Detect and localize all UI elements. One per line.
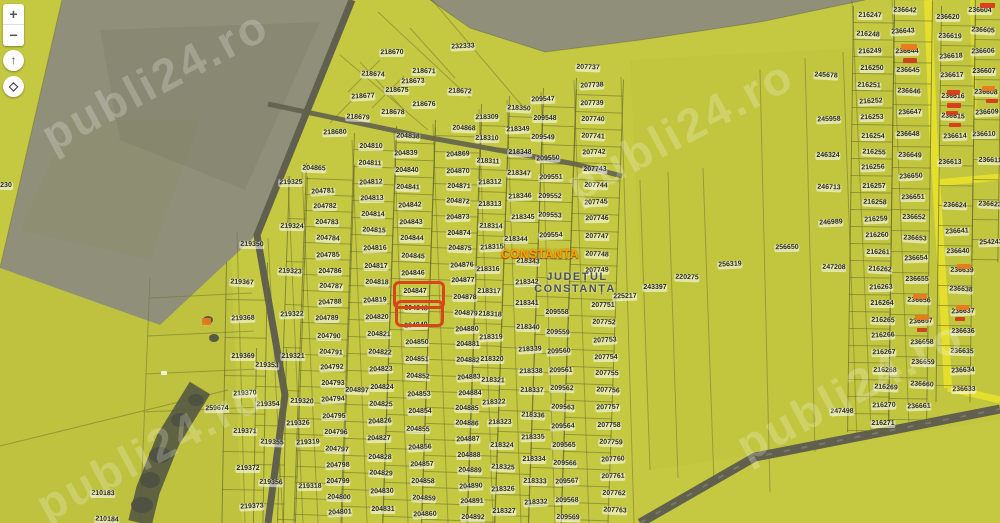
parcel-label-219319: 219319 <box>295 438 321 447</box>
parcel-label-246324: 246324 <box>815 152 840 160</box>
parcel-label-204816: 204816 <box>362 245 388 254</box>
parcel-label-219322: 219322 <box>279 311 305 320</box>
parcel-label-219368: 219368 <box>230 315 256 324</box>
parcel-label-247208: 247208 <box>821 264 846 272</box>
parcel-label-219372: 219372 <box>235 465 260 473</box>
parcel-label-204875: 204875 <box>447 245 473 254</box>
parcel-label-218314: 218314 <box>478 223 504 232</box>
parcel-label-246989: 246989 <box>818 218 844 227</box>
parcel-label-204829: 204829 <box>368 469 394 478</box>
parcel-label-204818: 204818 <box>364 279 390 288</box>
parcel-label-204882: 204882 <box>455 357 481 366</box>
parcel-label-204785: 204785 <box>315 252 341 261</box>
parcel-label-236617: 236617 <box>939 72 964 80</box>
parcel-label-218347: 218347 <box>506 170 532 179</box>
parcel-label-204840: 204840 <box>394 167 419 175</box>
parcel-label-204860: 204860 <box>412 511 438 520</box>
cadastral-map: 2323332186702186712186742186732186752186… <box>0 0 1000 523</box>
parcel-label-219325: 219325 <box>278 179 303 187</box>
listing-marker <box>956 305 969 310</box>
zoom-control: + − <box>3 4 24 46</box>
parcel-label-204814: 204814 <box>360 211 385 219</box>
parcel-label-204842: 204842 <box>397 201 423 210</box>
parcel-label-236652: 236652 <box>901 214 926 222</box>
parcel-label-207757: 207757 <box>595 404 621 413</box>
parcel-label-207758: 207758 <box>596 422 621 430</box>
parcel-label-207737: 207737 <box>575 64 601 73</box>
listing-marker <box>957 264 971 269</box>
parcel-label-216263: 216263 <box>868 284 894 293</box>
parcel-label-216259: 216259 <box>863 215 889 224</box>
parcel-label-218316: 218316 <box>475 266 500 274</box>
parcel-label-207753: 207753 <box>592 336 618 345</box>
parcel-label-216249: 216249 <box>857 48 883 57</box>
parcel-label-218319: 218319 <box>478 334 504 343</box>
parcel-label-209561: 209561 <box>548 367 573 375</box>
parcel-label-204796: 204796 <box>323 429 348 437</box>
parcel-label-218679: 218679 <box>345 113 371 122</box>
parcel-label-209567: 209567 <box>554 477 580 486</box>
parcel-label-218325: 218325 <box>490 463 516 472</box>
parcel-label-209563: 209563 <box>550 403 576 412</box>
parcel-label-204815: 204815 <box>361 226 387 235</box>
parcel-label-204887: 204887 <box>455 436 481 445</box>
parcel-label-207759: 207759 <box>598 439 624 448</box>
parcel-label-243397: 243397 <box>642 284 667 292</box>
parcel-label-218675: 218675 <box>384 87 409 95</box>
parcel-label-204841: 204841 <box>395 184 421 193</box>
parcel-label-204784: 204784 <box>315 234 341 243</box>
pan-up-button[interactable]: ↑ <box>3 50 24 71</box>
parcel-label-218311: 218311 <box>475 157 500 166</box>
parcel-label-236605: 236605 <box>970 26 996 35</box>
parcel-label-204857: 204857 <box>409 461 434 469</box>
parcel-label-204813: 204813 <box>359 195 384 203</box>
parcel-grid-column <box>253 348 287 523</box>
parcel-label-236623: 236623 <box>977 200 1000 209</box>
parcel-label-218349: 218349 <box>505 126 531 135</box>
parcel-label-204819: 204819 <box>362 296 388 305</box>
parcel-label-218310: 218310 <box>474 135 499 143</box>
parcel-label-204790: 204790 <box>316 333 341 341</box>
parcel-label-204886: 204886 <box>454 419 480 428</box>
parcel-label-236647: 236647 <box>897 109 923 118</box>
parcel-label-204871: 204871 <box>446 183 471 191</box>
parcel-label-209548: 209548 <box>532 115 557 123</box>
parcel-label-204843: 204843 <box>398 219 423 227</box>
listing-marker <box>202 318 211 325</box>
parcel-label-204783: 204783 <box>314 219 339 227</box>
parcel-label-236624: 236624 <box>942 202 968 211</box>
listing-marker <box>946 111 958 115</box>
parcel-label-236650: 236650 <box>898 172 924 181</box>
parcel-label-236618: 236618 <box>938 52 964 61</box>
parcel-label-204858: 204858 <box>410 478 435 486</box>
parcel-label-218344: 218344 <box>503 236 528 244</box>
parcel-label-218322: 218322 <box>481 398 507 407</box>
parcel-label-209562: 209562 <box>549 385 574 393</box>
parcel-label-209558: 209558 <box>544 309 569 317</box>
parcel-label-204831: 204831 <box>370 506 395 514</box>
parcel-label-218673: 218673 <box>400 78 426 87</box>
parcel-label-236610: 236610 <box>971 131 996 139</box>
parcel-label-204817: 204817 <box>363 263 388 271</box>
parcel-label-204844: 204844 <box>399 235 424 243</box>
parcel-label-207746: 207746 <box>584 215 609 223</box>
parcel-label-216251: 216251 <box>856 82 882 91</box>
parcel-label-236655: 236655 <box>904 276 929 284</box>
parcel-label-204874: 204874 <box>446 230 471 238</box>
parcel-label-216261: 216261 <box>865 249 890 257</box>
parcel-label-204825: 204825 <box>368 401 394 410</box>
parcel-label-219373: 219373 <box>239 502 265 511</box>
parcel-label-236638: 236638 <box>948 285 974 294</box>
zoom-out-button[interactable]: − <box>3 25 24 46</box>
parcel-label-204797: 204797 <box>324 445 350 454</box>
parcel-label-256319: 256319 <box>717 260 743 269</box>
parcel-label-219320: 219320 <box>289 398 315 407</box>
parcel-label-236634: 236634 <box>950 366 976 375</box>
parcel-label-209566: 209566 <box>552 460 578 469</box>
parcel-label-218671: 218671 <box>411 68 436 76</box>
parcel-label-216257: 216257 <box>861 183 886 191</box>
parcel-label-204827: 204827 <box>366 435 391 443</box>
parcel-label-204876: 204876 <box>449 261 475 270</box>
parcel-label-204856: 204856 <box>407 443 433 452</box>
parcel-label-232333: 232333 <box>450 42 476 51</box>
parcel-label-218345: 218345 <box>510 214 535 222</box>
parcel-label-204859: 204859 <box>411 494 437 503</box>
parcel-label-236651: 236651 <box>900 194 925 202</box>
parcel-label-204821: 204821 <box>366 331 391 339</box>
parcel-label-204878: 204878 <box>452 294 477 302</box>
parcel-label-236614: 236614 <box>942 133 968 142</box>
parcel-label-218672: 218672 <box>447 88 473 97</box>
parcel-label-204782: 204782 <box>312 203 337 211</box>
zoom-in-button[interactable]: + <box>3 4 24 25</box>
parcel-label-216250: 216250 <box>859 65 884 73</box>
parcel-label-204879: 204879 <box>453 309 479 318</box>
parcel-label-236641: 236641 <box>944 227 970 236</box>
parcel-label-207754: 207754 <box>593 354 618 362</box>
parcel-label-207762: 207762 <box>601 490 626 498</box>
parcel-label-204810: 204810 <box>358 143 383 151</box>
parcel-label-236607: 236607 <box>971 68 996 76</box>
parcel-label-218680: 218680 <box>322 129 348 138</box>
listing-marker <box>947 103 961 108</box>
parcel-label-204789: 204789 <box>314 315 339 323</box>
parcel-label-209559: 209559 <box>545 329 571 338</box>
parcel-label-204850: 204850 <box>404 339 429 347</box>
parcel-label-218318: 218318 <box>477 310 503 319</box>
parcel-label-204852: 204852 <box>405 372 431 381</box>
parcel-label-216264: 216264 <box>869 300 894 308</box>
listing-marker <box>901 44 917 50</box>
parcel-label-236620: 236620 <box>935 14 960 22</box>
parcel-label-219353: 219353 <box>254 362 280 371</box>
parcel-label-204798: 204798 <box>325 462 351 471</box>
parcel-label-218327: 218327 <box>491 508 516 516</box>
parcel-label-236604: 236604 <box>967 7 992 15</box>
place-label: JUDEȚUL <box>546 271 607 283</box>
parcel-label-236613: 236613 <box>937 159 962 167</box>
listing-marker <box>982 86 995 91</box>
parcel-label-246713: 246713 <box>816 184 842 193</box>
compass-button[interactable]: ◇ <box>3 76 24 97</box>
parcel-label-207761: 207761 <box>600 473 625 481</box>
parcel-label-204786: 204786 <box>317 268 342 276</box>
parcel-label-216252: 216252 <box>858 97 884 106</box>
parcel-label-219318: 219318 <box>297 483 322 491</box>
parcel-label-209560: 209560 <box>546 347 572 356</box>
parcel-label-218677: 218677 <box>350 92 376 101</box>
parcel-label-218320: 218320 <box>479 356 504 364</box>
parcel-label-216258: 216258 <box>862 199 888 208</box>
parcel-label-219369: 219369 <box>230 353 255 361</box>
parcel-label-204881: 204881 <box>455 341 480 349</box>
parcel-label-204869: 204869 <box>445 150 471 159</box>
parcel-label-209550: 209550 <box>535 154 561 163</box>
parcel-label-218323: 218323 <box>487 419 512 427</box>
parcel-label-209547: 209547 <box>530 96 556 105</box>
parcel-label-245678: 245678 <box>813 71 839 80</box>
parcel-label-230: 230 <box>0 182 13 190</box>
listing-marker <box>980 3 995 8</box>
parcel-label-219321: 219321 <box>280 353 305 361</box>
parcel-label-207752: 207752 <box>591 319 617 328</box>
parcel-label-209564: 209564 <box>550 423 576 432</box>
parcel-label-207760: 207760 <box>600 455 626 464</box>
listing-marker <box>955 317 965 321</box>
listing-marker <box>161 371 167 375</box>
parcel-label-218312: 218312 <box>477 179 503 188</box>
parcel-label-236611: 236611 <box>977 157 1000 165</box>
parcel-label-236654: 236654 <box>903 255 929 264</box>
parcel-label-219356: 219356 <box>258 479 284 488</box>
parcel-label-207751: 207751 <box>590 302 615 310</box>
listing-marker <box>913 294 927 299</box>
parcel-label-218678: 218678 <box>380 109 405 117</box>
parcel-label-204811: 204811 <box>357 160 382 169</box>
parcel-label-218676: 218676 <box>411 101 436 109</box>
parcel-label-218346: 218346 <box>507 192 533 201</box>
parcel-label-236642: 236642 <box>892 7 918 16</box>
parcel-label-216256: 216256 <box>860 164 886 173</box>
parcel-label-218338: 218338 <box>518 368 543 376</box>
parcel-label-218350: 218350 <box>506 104 532 113</box>
parcel-label-236645: 236645 <box>895 67 920 75</box>
parcel-label-219324: 219324 <box>279 223 304 231</box>
parcel-label-220275: 220275 <box>674 274 700 283</box>
parcel-label-218337: 218337 <box>519 387 544 395</box>
parcel-label-204873: 204873 <box>445 214 471 223</box>
parcel-label-204823: 204823 <box>368 366 394 375</box>
parcel-label-209549: 209549 <box>530 134 556 143</box>
parcel-label-210184: 210184 <box>94 515 120 523</box>
parcel-label-219323: 219323 <box>277 267 303 276</box>
parcel-label-207748: 207748 <box>584 250 610 259</box>
parcel-label-236606: 236606 <box>970 48 996 57</box>
listing-marker <box>903 58 917 63</box>
parcel-label-204891: 204891 <box>459 498 484 506</box>
parcel-label-209553: 209553 <box>537 211 563 220</box>
parcel-label-204830: 204830 <box>369 488 395 497</box>
parcel-label-218348: 218348 <box>507 149 532 157</box>
parcel-label-216248: 216248 <box>855 30 881 39</box>
parcel-label-218339: 218339 <box>517 345 543 354</box>
parcel-label-236649: 236649 <box>897 152 923 161</box>
parcel-label-204845: 204845 <box>400 252 426 261</box>
parcel-label-204853: 204853 <box>406 391 432 400</box>
parcel-label-218335: 218335 <box>520 434 546 443</box>
parcel-label-204792: 204792 <box>319 364 345 373</box>
parcel-label-218674: 218674 <box>360 70 386 79</box>
parcel-label-209554: 209554 <box>538 232 564 241</box>
parcel-label-207763: 207763 <box>602 506 628 515</box>
parcel-label-218317: 218317 <box>476 288 501 296</box>
parcel-label-218324: 218324 <box>489 442 514 450</box>
parcel-label-216255: 216255 <box>861 148 887 157</box>
parcel-label-204800: 204800 <box>326 494 352 503</box>
parcel-label-216260: 216260 <box>864 232 889 240</box>
parcel-label-209565: 209565 <box>551 442 576 450</box>
parcel-label-204801: 204801 <box>327 508 353 517</box>
parcel-label-204826: 204826 <box>367 417 393 426</box>
parcel-label-204793: 204793 <box>320 380 345 388</box>
parcel-label-236633: 236633 <box>951 386 976 394</box>
parcel-label-204788: 204788 <box>317 298 343 307</box>
parcel-label-254243: 254243 <box>978 239 1000 248</box>
parcel-label-204781: 204781 <box>310 187 336 196</box>
parcel-label-209568: 209568 <box>554 497 579 505</box>
parcel-label-204854: 204854 <box>407 408 432 416</box>
parcel-label-219350: 219350 <box>239 241 264 249</box>
parcel-label-204822: 204822 <box>367 348 393 357</box>
parcel-label-209552: 209552 <box>537 193 562 201</box>
parcel-label-204824: 204824 <box>369 384 394 392</box>
parcel-label-204877: 204877 <box>450 277 475 285</box>
parcel-label-204883: 204883 <box>456 373 482 382</box>
parcel-label-218321: 218321 <box>480 377 506 386</box>
listing-marker <box>986 99 998 103</box>
parcel-label-204846: 204846 <box>400 270 426 279</box>
parcel-label-204820: 204820 <box>364 314 389 322</box>
parcel-label-207747: 207747 <box>584 233 609 241</box>
listing-marker <box>949 123 961 127</box>
parcel-label-204794: 204794 <box>320 395 346 404</box>
parcel-label-204812: 204812 <box>358 178 384 187</box>
parcel-label-218333: 218333 <box>522 478 548 487</box>
parcel-label-204868: 204868 <box>451 125 477 134</box>
parcel-label-216253: 216253 <box>859 114 884 122</box>
parcel-label-204839: 204839 <box>393 150 419 159</box>
parcel-label-207756: 207756 <box>595 386 621 395</box>
parcel-label-204838: 204838 <box>395 132 421 141</box>
parcel-label-236619: 236619 <box>937 33 963 42</box>
parcel-label-218341: 218341 <box>514 300 539 308</box>
parcel-label-218326: 218326 <box>490 486 516 495</box>
parcel-label-204888: 204888 <box>456 452 481 460</box>
parcel-label-236661: 236661 <box>906 403 932 412</box>
parcel-label-204889: 204889 <box>457 467 483 476</box>
parcel-label-204787: 204787 <box>318 283 344 292</box>
parcel-label-204828: 204828 <box>367 454 392 462</box>
parcel-label-204855: 204855 <box>405 426 431 435</box>
parcel-label-218332: 218332 <box>523 498 549 507</box>
parcel-label-204892: 204892 <box>460 514 485 522</box>
parcel-label-207738: 207738 <box>579 81 605 90</box>
parcel-label-216265: 216265 <box>870 317 896 326</box>
parcel-label-209551: 209551 <box>538 174 563 182</box>
parcel-label-204851: 204851 <box>404 356 429 364</box>
parcel-label-219367: 219367 <box>229 278 255 287</box>
parcel-label-204791: 204791 <box>318 348 344 357</box>
parcel-label-236653: 236653 <box>902 234 928 243</box>
parcel-label-207740: 207740 <box>580 116 605 124</box>
parcel-label-204865: 204865 <box>301 165 327 174</box>
parcel-label-216262: 216262 <box>867 265 893 274</box>
parcel-label-236640: 236640 <box>945 248 970 256</box>
parcel-label-204890: 204890 <box>458 482 484 491</box>
parcel-label-204884: 204884 <box>457 390 482 398</box>
parcel-label-204880: 204880 <box>454 326 480 335</box>
parcel-label-207739: 207739 <box>579 100 604 108</box>
parcel-label-204795: 204795 <box>321 413 346 421</box>
place-label: CONSTANȚA <box>534 283 616 295</box>
parcel-label-245958: 245958 <box>816 116 842 125</box>
parcel-label-256650: 256650 <box>774 244 799 252</box>
parcel-label-236648: 236648 <box>895 131 920 139</box>
highlighted-parcel-outline <box>395 300 444 327</box>
parcel-label-218336: 218336 <box>520 411 546 420</box>
parcel-label-216254: 216254 <box>860 133 885 141</box>
parcel-label-209569: 209569 <box>555 514 580 522</box>
parcel-label-218313: 218313 <box>477 201 502 209</box>
parcel-label-204799: 204799 <box>325 478 350 486</box>
listing-marker <box>947 90 960 95</box>
parcel-label-218334: 218334 <box>521 456 546 464</box>
parcel-label-204897: 204897 <box>344 387 370 396</box>
parcel-label-216271: 216271 <box>870 420 895 428</box>
parcel-label-204872: 204872 <box>445 197 471 206</box>
parcel-label-236646: 236646 <box>896 87 922 96</box>
parcel-label-204885: 204885 <box>454 405 479 413</box>
parcel-label-236609: 236609 <box>974 108 1000 117</box>
parcel-label-218309: 218309 <box>474 114 499 122</box>
parcel-label-204870: 204870 <box>445 168 470 176</box>
parcel-label-207755: 207755 <box>594 370 619 378</box>
parcel-label-218670: 218670 <box>379 49 404 57</box>
parcel-label-219326: 219326 <box>285 420 311 429</box>
parcel-label-236643: 236643 <box>890 27 916 36</box>
parcel-label-218340: 218340 <box>515 324 541 333</box>
parcel-label-216247: 216247 <box>857 12 882 20</box>
place-label: CONSTANTA <box>501 247 579 261</box>
parcel-label-219355: 219355 <box>259 438 285 447</box>
